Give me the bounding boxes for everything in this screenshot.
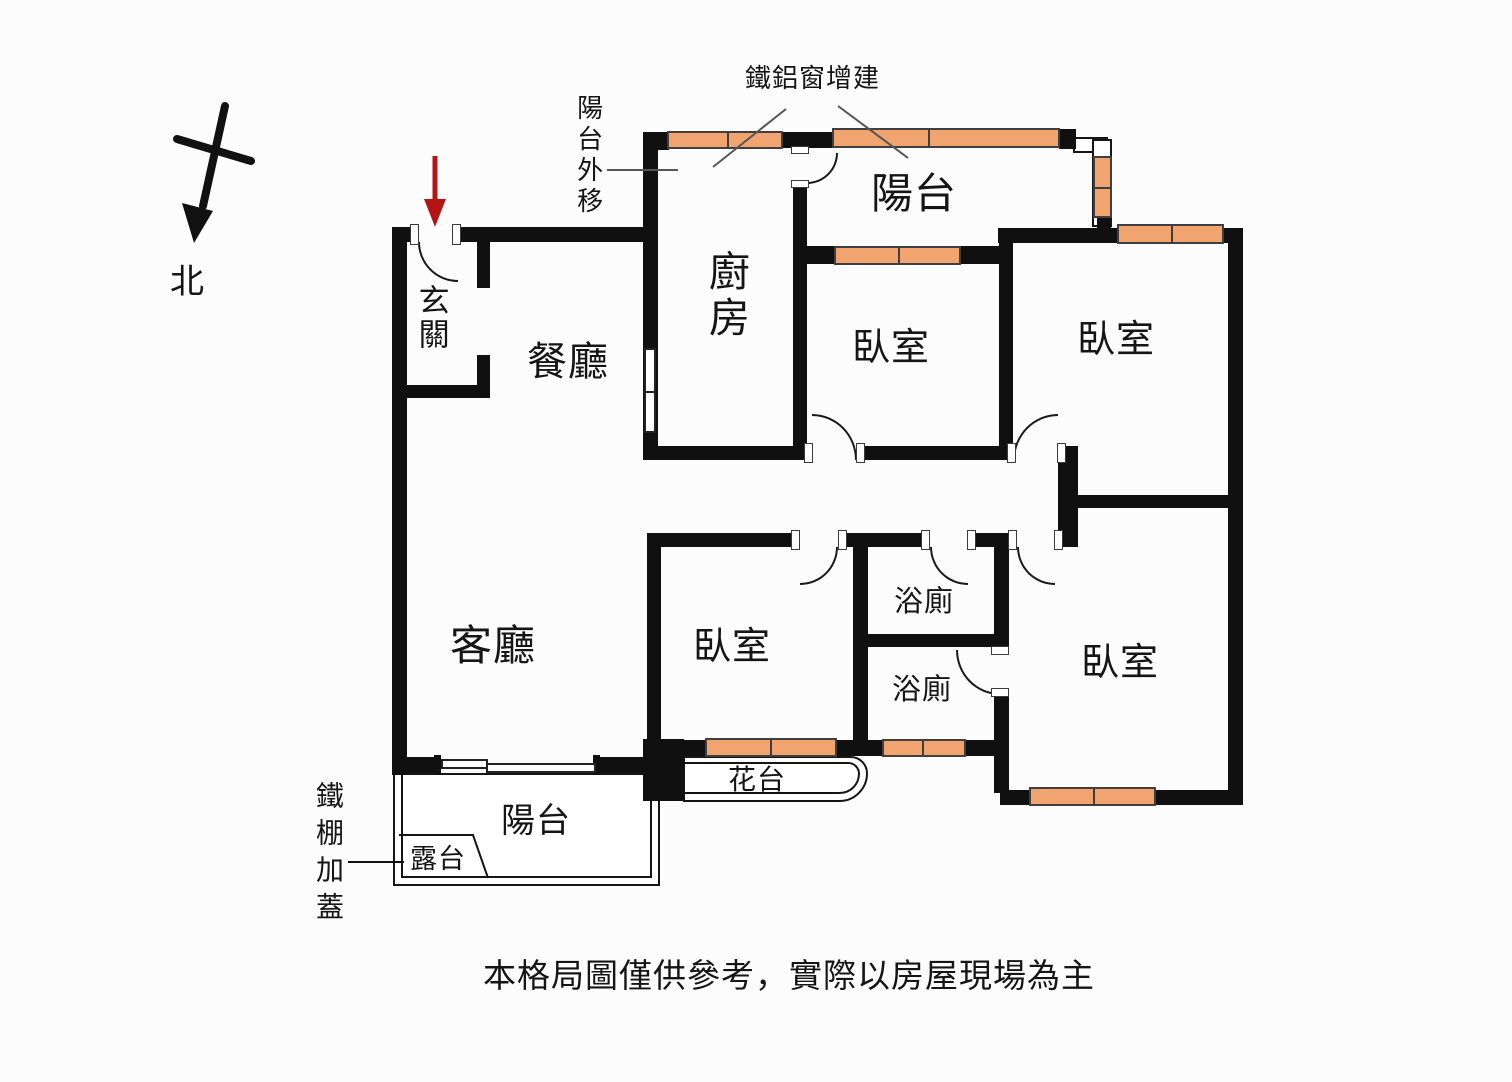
window-marker <box>882 739 966 757</box>
wall <box>647 533 792 547</box>
bedroom-a-door-arc <box>812 414 857 460</box>
wall <box>959 246 1001 264</box>
bedroom-c-door-arc <box>800 547 838 585</box>
sliding-door-panel <box>441 759 488 769</box>
door-hinge <box>1007 443 1016 463</box>
wall <box>807 246 836 264</box>
wall <box>683 740 707 756</box>
wall <box>392 757 437 773</box>
wall <box>477 242 490 288</box>
wall <box>392 227 407 775</box>
window-marker <box>667 131 783 149</box>
window-marker <box>1093 156 1112 218</box>
door-hinge <box>791 530 800 550</box>
room-label-bedroom-d: 臥室 <box>1081 640 1159 685</box>
window-marker <box>834 246 961 265</box>
bath-a-door-arc <box>930 547 968 585</box>
door-hinge <box>1054 530 1063 550</box>
bedroom-b-door-arc <box>1013 414 1058 460</box>
room-label-bedroom-b: 臥室 <box>1077 317 1155 362</box>
room-label-bedroom-a: 臥室 <box>852 325 930 370</box>
wall <box>868 634 1008 647</box>
wall <box>599 757 647 773</box>
room-label-bath-b: 浴廁 <box>892 672 952 706</box>
door-hinge <box>1008 530 1017 550</box>
kitchen-balcony-door-arc <box>807 153 838 184</box>
wall <box>964 740 1008 756</box>
room-label-living: 客廳 <box>450 621 536 671</box>
door-hinge <box>791 180 809 188</box>
room-label-foyer: 玄關 <box>412 284 449 352</box>
footer-disclaimer: 本格局圖僅供參考，實際以房屋現場為主 <box>483 957 1095 996</box>
door-hinge <box>452 224 461 245</box>
door-hinge <box>991 646 1009 655</box>
room-label-dining: 餐廳 <box>527 339 609 386</box>
annotation-balcony-extended: 陽台外移 <box>572 94 603 218</box>
window-marker <box>832 128 1060 148</box>
room-label-terrace: 露台 <box>410 844 466 876</box>
wall <box>1097 217 1111 234</box>
pillar-block <box>643 739 684 801</box>
wall <box>835 740 868 756</box>
kitchen-sliding-door <box>644 348 656 433</box>
wall <box>864 446 1010 460</box>
floor-plan: 北 鐵鋁窗增建 陽台外移 鐵棚加蓋 玄關 餐廳 廚房 陽台 臥室 臥室 客廳 臥… <box>0 0 1512 1082</box>
wall <box>853 533 868 756</box>
door-hinge <box>1057 443 1066 463</box>
door-hinge <box>856 443 865 463</box>
wall <box>1078 495 1242 508</box>
annotation-iron-shed: 鐵棚加蓋 <box>312 781 345 929</box>
door-hinge <box>804 443 813 463</box>
window-marker <box>1029 787 1156 806</box>
wall <box>397 385 490 398</box>
wall <box>1059 129 1076 149</box>
wall <box>1155 790 1243 805</box>
annotation-window-addition: 鐵鋁窗增建 <box>745 64 880 95</box>
room-label-balcony-top: 陽台 <box>871 169 957 219</box>
wall <box>976 533 1010 547</box>
wall <box>1228 228 1243 805</box>
wall <box>477 355 490 385</box>
wall <box>793 181 807 458</box>
door-hinge <box>791 146 809 154</box>
wall <box>994 547 1009 648</box>
wall <box>999 232 1013 458</box>
entry-door-arc <box>418 242 458 282</box>
compass-north-label: 北 <box>170 262 205 302</box>
room-label-bedroom-c: 臥室 <box>693 624 771 669</box>
entrance-arrow-icon <box>424 156 446 227</box>
door-hinge <box>921 530 930 550</box>
sliding-door-panel <box>486 763 596 773</box>
door-hinge <box>991 688 1009 697</box>
sliding-door-cap <box>434 755 441 775</box>
room-label-kitchen: 廚房 <box>701 250 749 342</box>
window-marker <box>1117 224 1224 244</box>
wall <box>647 533 661 748</box>
north-compass-icon <box>177 106 251 243</box>
wall <box>1000 790 1032 805</box>
bedroom-d-door-arc <box>1017 547 1055 585</box>
door-hinge <box>838 530 847 550</box>
door-hinge <box>410 224 419 245</box>
room-label-balcony-bottom: 陽台 <box>501 801 571 841</box>
door-hinge <box>967 530 976 550</box>
wall <box>643 132 669 150</box>
window-marker <box>705 738 837 757</box>
wall <box>459 227 643 242</box>
room-label-flower-bed: 花台 <box>728 763 786 796</box>
wall <box>643 446 806 460</box>
room-label-bath-a: 浴廁 <box>894 584 954 618</box>
